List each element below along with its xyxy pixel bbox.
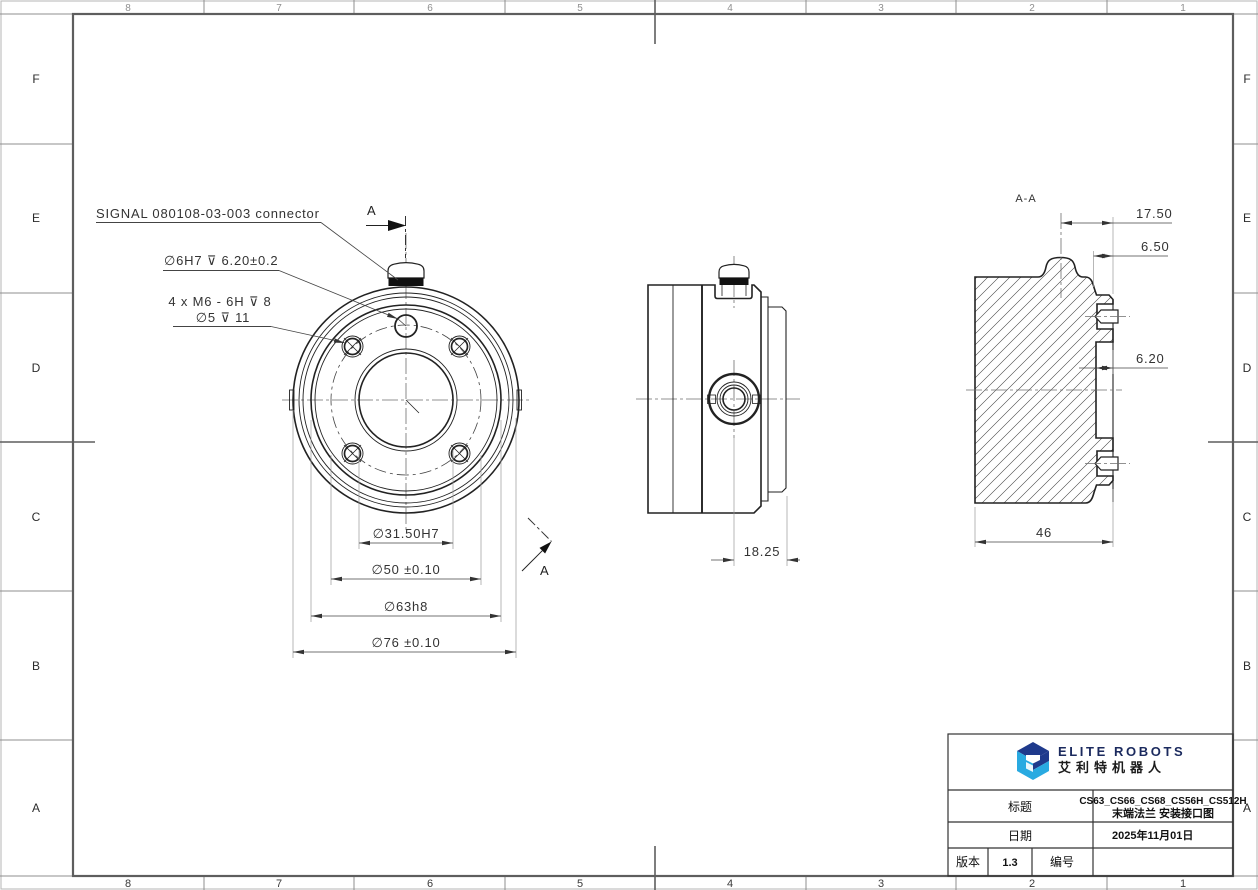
tapped-hole — [342, 443, 363, 464]
title-value-line1: CS63_CS66_CS68_CS56H_CS512H — [1079, 796, 1246, 807]
version-value: 1.3 — [1002, 857, 1017, 869]
side-centerlines — [636, 256, 800, 438]
side-view: 18.25 — [636, 256, 800, 566]
zone-col: 7 — [276, 3, 282, 14]
dim-6-20: 6.20 — [1136, 351, 1165, 366]
dim-46: 46 — [1036, 525, 1052, 540]
zone-row: E — [1243, 211, 1251, 225]
date-label: 日期 — [1008, 829, 1032, 843]
side-dimension: 18.25 — [711, 438, 800, 566]
zone-col: 2 — [1029, 878, 1035, 890]
brand-name: ELITE ROBOTS — [1058, 744, 1185, 759]
dim-outer: ∅76 ±0.10 — [371, 635, 440, 650]
dim-bore: ∅31.50H7 — [373, 526, 440, 541]
zone-row: F — [32, 72, 39, 86]
tapped-hole — [342, 336, 363, 357]
zone-col: 6 — [427, 878, 433, 890]
section-body — [975, 258, 1113, 504]
drawing-canvas: 8 7 6 5 4 3 2 1 8 7 6 5 4 3 2 1 F E D C … — [0, 0, 1258, 890]
zone-col: 7 — [276, 878, 282, 890]
zone-row: E — [32, 211, 40, 225]
front-notes: SIGNAL 080108-03-003 connector ∅6H7 ⊽ 6.… — [96, 206, 406, 343]
section-cut-marks: A A — [366, 203, 552, 578]
dim-17-50: 17.50 — [1136, 206, 1173, 221]
note-dowel: ∅6H7 ⊽ 6.20±0.2 — [164, 253, 278, 268]
dim-bolt-circle: ∅50 ±0.10 — [371, 562, 440, 577]
zone-col: 5 — [577, 878, 583, 890]
note-m6-line2: ∅5 ⊽ 11 — [196, 310, 250, 325]
brand-name-cn: 艾利特机器人 — [1058, 760, 1166, 775]
section-letter-bottom: A — [540, 563, 549, 578]
title-block: ELITE ROBOTS 艾利特机器人 标题 CS63_CS66_CS68_CS… — [948, 734, 1247, 876]
note-m6-line1: 4 x M6 - 6H ⊽ 8 — [168, 294, 271, 309]
zone-row: C — [1243, 510, 1252, 524]
zone-col: 3 — [878, 878, 884, 890]
section-title: A-A — [1015, 193, 1036, 205]
zone-row: B — [1243, 659, 1251, 673]
zone-row: D — [32, 361, 41, 375]
zone-col: 1 — [1180, 878, 1186, 890]
zone-col: 4 — [727, 878, 733, 890]
zone-col: 4 — [727, 3, 733, 14]
dim-pilot: ∅63h8 — [384, 599, 428, 614]
elite-robots-logo-icon — [1017, 742, 1049, 780]
number-label: 编号 — [1050, 854, 1074, 869]
zone-col: 2 — [1029, 3, 1035, 14]
company-logo: ELITE ROBOTS 艾利特机器人 — [1017, 742, 1185, 780]
zone-row: B — [32, 659, 40, 673]
zone-col: 1 — [1180, 3, 1186, 14]
section-arrow-top — [388, 220, 406, 231]
zone-col: 6 — [427, 3, 433, 14]
version-label: 版本 — [956, 855, 980, 869]
connector-side — [719, 264, 749, 285]
zone-labels-left: F E D C B A — [32, 72, 41, 815]
zone-row: F — [1243, 72, 1250, 86]
front-view: SIGNAL 080108-03-003 connector ∅6H7 ⊽ 6.… — [96, 203, 552, 658]
title-label: 标题 — [1008, 800, 1032, 814]
dim-offset: 18.25 — [744, 544, 781, 559]
tapped-hole — [449, 443, 470, 464]
zone-row: C — [32, 510, 41, 524]
zone-col: 8 — [125, 878, 131, 890]
tapped-hole — [449, 336, 470, 357]
zone-col: 3 — [878, 3, 884, 14]
section-letter-top: A — [367, 203, 376, 218]
section-view: A-A 17.50 6.50 — [966, 193, 1173, 547]
dim-6-50: 6.50 — [1141, 239, 1170, 254]
connector-band — [389, 278, 424, 287]
title-value-line2: 末端法兰 安装接口图 — [1111, 806, 1214, 820]
zone-row: D — [1243, 361, 1252, 375]
connector-band — [720, 278, 749, 286]
date-value: 2025年11月01日 — [1112, 828, 1193, 842]
zone-col: 5 — [577, 3, 583, 14]
drawing-sheet: 8 7 6 5 4 3 2 1 8 7 6 5 4 3 2 1 F E D C … — [0, 0, 1258, 890]
zone-labels-right: F E D C B A — [1243, 72, 1252, 815]
connector-front — [388, 263, 424, 286]
zone-row: A — [32, 801, 40, 815]
zone-col: 8 — [125, 3, 131, 14]
note-connector: SIGNAL 080108-03-003 connector — [96, 206, 320, 221]
